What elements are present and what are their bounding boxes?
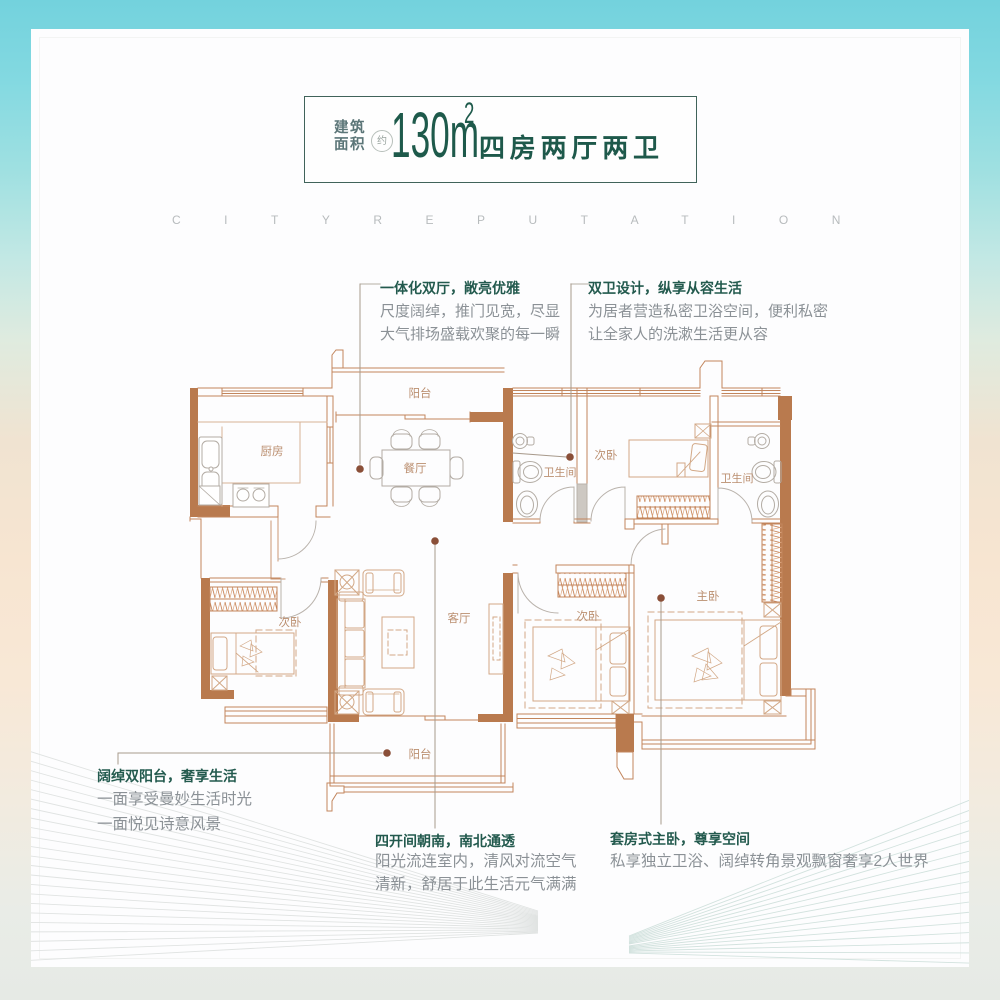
- svg-text:阳台: 阳台: [409, 386, 432, 400]
- svg-text:客厅: 客厅: [448, 611, 471, 625]
- svg-text:主卧: 主卧: [697, 590, 720, 603]
- svg-text:餐厅: 餐厅: [404, 461, 427, 475]
- svg-text:次卧: 次卧: [279, 615, 302, 629]
- svg-text:厨房: 厨房: [261, 445, 284, 458]
- svg-text:卫生间: 卫生间: [721, 471, 754, 485]
- svg-text:阳台: 阳台: [409, 747, 432, 761]
- svg-text:次卧: 次卧: [595, 448, 618, 462]
- svg-text:卫生间: 卫生间: [544, 465, 577, 479]
- svg-text:次卧: 次卧: [577, 609, 600, 623]
